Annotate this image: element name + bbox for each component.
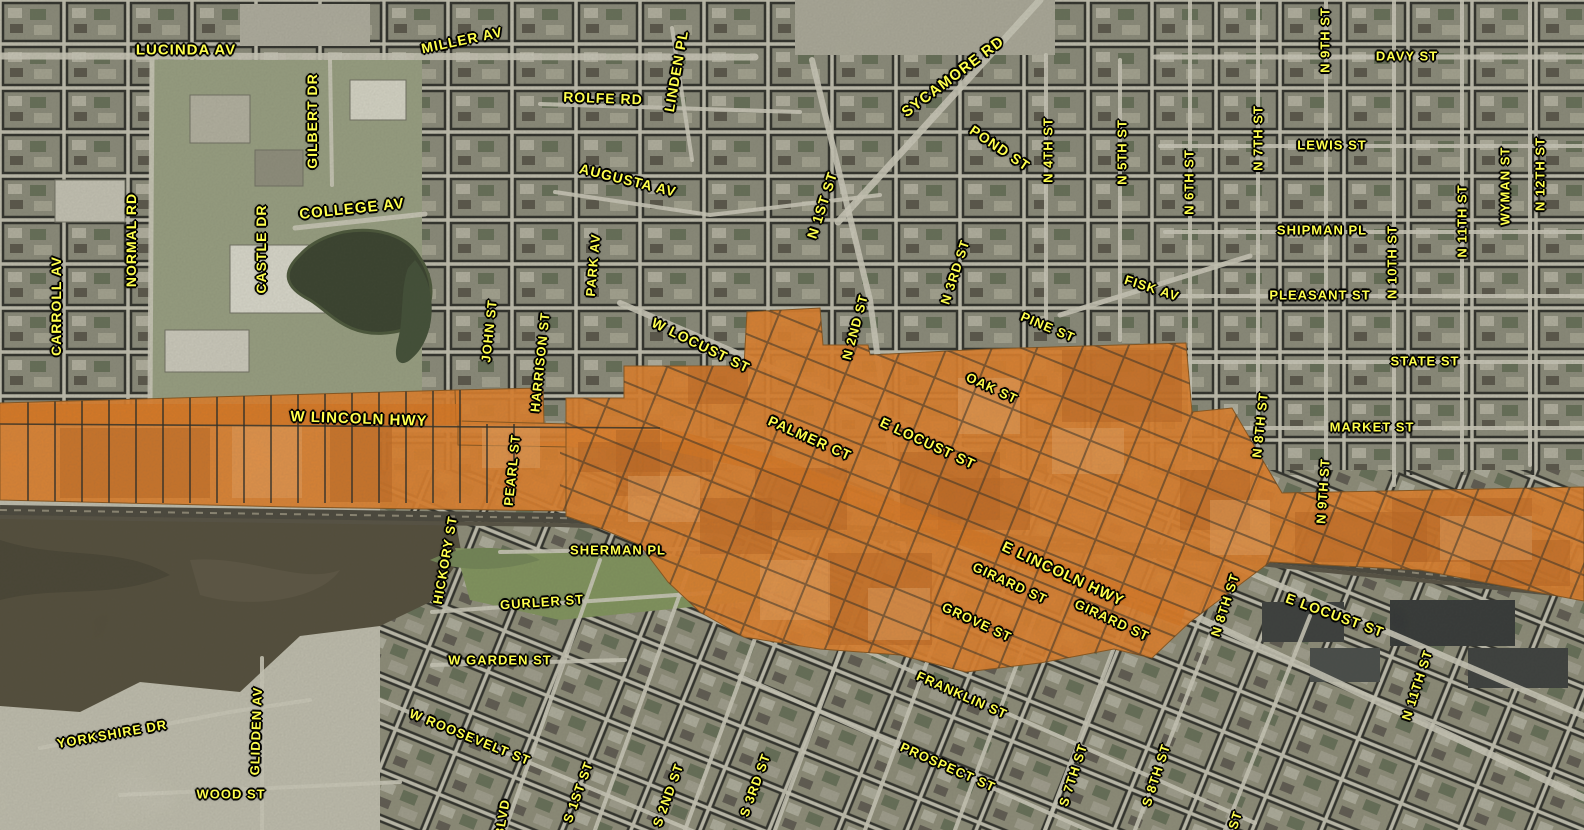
map-imagery <box>0 0 1584 830</box>
imagery-grain <box>0 0 1584 830</box>
aerial-map-canvas[interactable]: LUCINDA AVMILLER AVROLFE RDLINDEN PLAUGU… <box>0 0 1584 830</box>
